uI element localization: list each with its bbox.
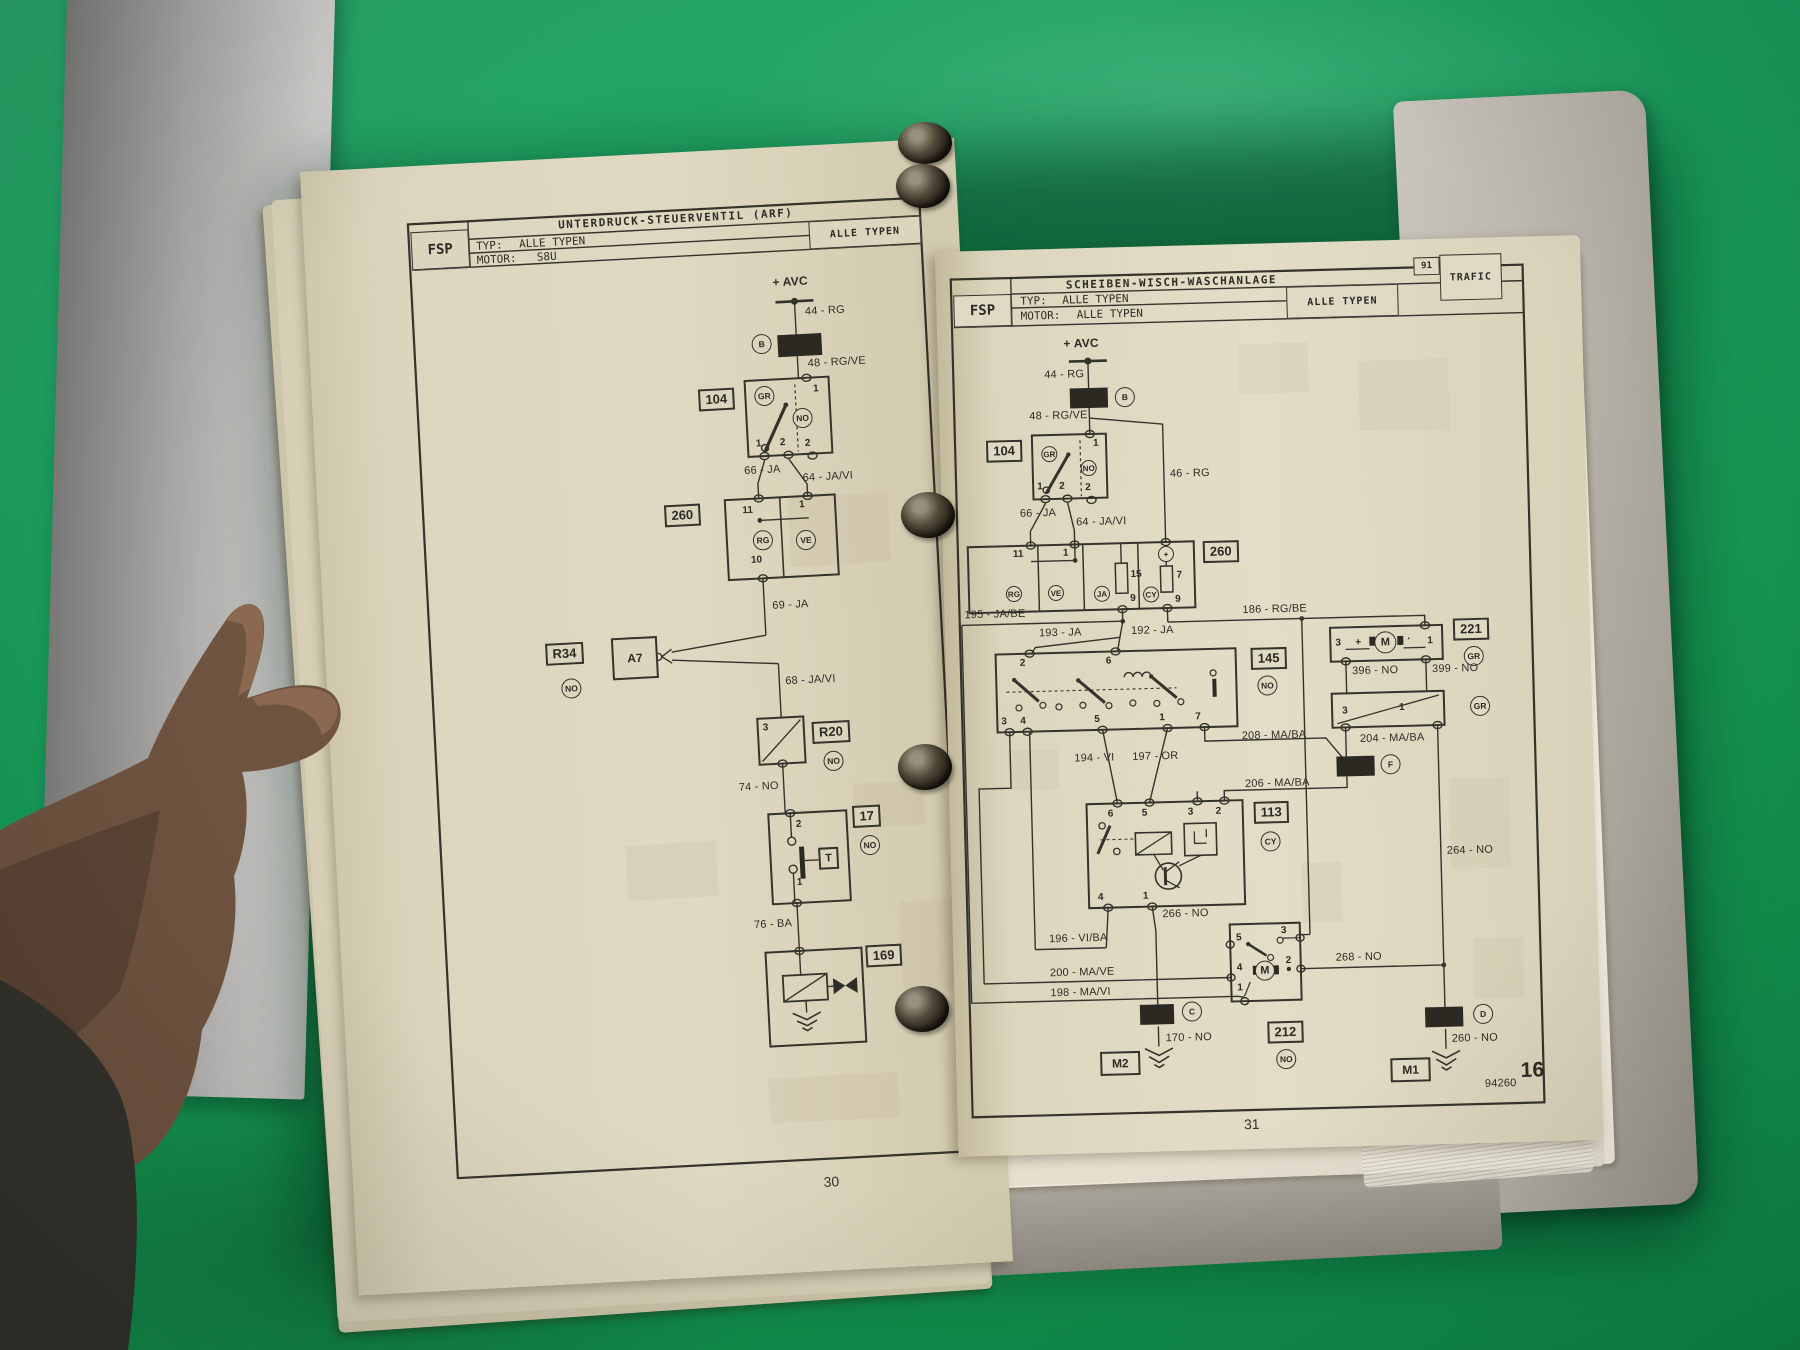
wire-label-198: 198 - MA/VI: [1050, 986, 1111, 1000]
pin-fuse7: 7: [1176, 570, 1182, 581]
typ-label: TYP:: [1020, 294, 1047, 308]
motor-label: MOTOR:: [1021, 309, 1061, 323]
pin-104-b1: 1: [1037, 481, 1043, 492]
variant-cell: ALLE TYPEN: [808, 216, 921, 250]
pin-221-1: 1: [1427, 635, 1433, 646]
ref-145: 145: [1250, 647, 1286, 670]
pin-260-11: 11: [742, 505, 753, 517]
wire-label-268: 268 - NO: [1335, 951, 1382, 964]
binder-ring-3: [901, 492, 955, 538]
ref-104: 104: [986, 440, 1022, 463]
wire-label-200: 200 - MA/VE: [1050, 966, 1115, 980]
motor-value: S8U: [536, 250, 557, 264]
pin-145-5: 5: [1094, 714, 1100, 725]
wire-label-197: 197 - OR: [1132, 750, 1179, 763]
wire-label-66: 66 - JA: [1020, 507, 1057, 520]
pin-104-b1: 1: [756, 438, 762, 449]
pin-104-b2a: 2: [780, 437, 786, 448]
pin-113-6: 6: [1108, 809, 1114, 820]
wire-label-204: 204 - MA/BA: [1360, 731, 1425, 745]
wire-label-66: 66 - JA: [744, 463, 781, 477]
pin-145-4: 4: [1020, 716, 1026, 727]
fsp-cell: FSP: [410, 229, 470, 270]
pin-260-1: 1: [799, 499, 805, 510]
binder-ring-4: [898, 744, 952, 790]
typ-value: ALLE TYPEN: [1062, 292, 1129, 307]
binder-ring-5: [895, 986, 949, 1032]
pin-145-7: 7: [1195, 711, 1201, 722]
pin-260-1: 1: [1063, 548, 1069, 559]
sheet-cell: 91: [1413, 257, 1439, 276]
box-a7: A7: [611, 636, 659, 680]
pin-fuse15: 15: [1130, 569, 1141, 580]
pin-221-minus: ·: [1407, 634, 1411, 645]
wire-label-260: 260 - NO: [1452, 1032, 1499, 1045]
hand-holding-page: [0, 570, 420, 1350]
wire-label-396: 396 - NO: [1352, 664, 1399, 677]
supply-label: + AVC: [1063, 336, 1099, 351]
typ-label: TYP:: [476, 239, 503, 253]
ref-221: 221: [1453, 618, 1489, 641]
ground-m2: M2: [1100, 1051, 1141, 1076]
ref-212: 212: [1267, 1021, 1303, 1044]
wire-label-46: 46 - RG: [1170, 467, 1210, 480]
connector-b-block: [777, 333, 822, 357]
wire-label-48: 48 - RG/VE: [1029, 409, 1088, 423]
ref-169: 169: [865, 944, 902, 968]
wire-label-76: 76 - BA: [754, 917, 793, 931]
pin-113-3: 3: [1188, 806, 1194, 817]
pin-212-5: 5: [1236, 932, 1242, 943]
connector-c-block: [1140, 1004, 1175, 1025]
wire-label-69: 69 - JA: [772, 598, 809, 612]
right-diagram-linework: [935, 235, 1603, 1157]
wire-label-208: 208 - MA/BA: [1242, 728, 1307, 742]
a7-arrowhead: [661, 649, 672, 664]
ref-260: 260: [1203, 540, 1239, 563]
pin-145-6: 6: [1106, 656, 1112, 667]
connector-b-block: [1070, 388, 1109, 409]
wire-label-194: 194 - VI: [1074, 751, 1114, 764]
wire-label-193: 193 - JA: [1039, 626, 1082, 639]
pin-fuse15-out: 9: [1130, 593, 1136, 604]
motor-label: MOTOR:: [477, 252, 517, 267]
left-page-number: 30: [823, 1173, 839, 1190]
pin-104-b2a: 2: [1059, 481, 1065, 492]
connector-ovals: [997, 421, 1449, 1010]
right-page-number: 31: [1244, 1116, 1260, 1132]
pin-17-2: 2: [796, 819, 802, 830]
wire-label-195: 195 - JA/BE: [964, 608, 1025, 622]
valve-symbol: [833, 977, 858, 994]
pin-17-1: 1: [797, 877, 803, 888]
ground-symbol: [793, 1012, 822, 1031]
pin-104-top1: 1: [1093, 438, 1099, 449]
supply-dot: [1084, 357, 1091, 364]
pin-260-10: 10: [751, 554, 763, 566]
ref-r34: R34: [545, 642, 584, 666]
pin-r20-3: 3: [762, 722, 768, 733]
wire-label-264: 264 - NO: [1447, 844, 1494, 857]
coil-symbol: [1124, 672, 1151, 677]
pin-260-11: 11: [1013, 549, 1024, 560]
wire-label-44: 44 - RG: [1044, 368, 1084, 381]
pin-221-plus: +: [1355, 637, 1361, 648]
variant-cell: ALLE TYPEN: [1286, 284, 1399, 319]
component-169: [765, 948, 866, 1047]
connector-f-block: [1336, 756, 1375, 777]
binder-ring-2: [896, 164, 950, 208]
wire-label-192: 192 - JA: [1131, 624, 1174, 637]
wire-label-399: 399 - NO: [1432, 662, 1479, 675]
ref-104: 104: [698, 388, 735, 412]
pin-212-2: 2: [1286, 955, 1292, 966]
wire-label-64: 64 - JA/VI: [1076, 515, 1127, 528]
pin-113-1: 1: [1143, 891, 1149, 902]
pin-104-b2b: 2: [805, 438, 811, 449]
supply-label: + AVC: [772, 274, 808, 290]
model-cell: TRAFIC: [1439, 253, 1502, 301]
pin-fuse7-out: 9: [1175, 594, 1181, 605]
pin-212-1: 1: [1237, 982, 1243, 993]
supply-dot: [791, 298, 798, 305]
ref-260: 260: [664, 504, 701, 528]
component-221-resistor: [1332, 691, 1445, 728]
pin-145-3: 3: [1001, 716, 1007, 727]
doc-number: 94260: [1485, 1077, 1517, 1090]
pin-221-3: 3: [1335, 638, 1341, 649]
pin-res-3: 3: [1342, 705, 1348, 716]
binder-ring-1: [898, 122, 952, 164]
wire-label-206: 206 - MA/BA: [1245, 776, 1310, 790]
pin-113-2: 2: [1216, 806, 1222, 817]
fsp-cell: FSP: [953, 294, 1012, 328]
pin-212-4: 4: [1237, 962, 1243, 973]
pin-113-4: 4: [1098, 892, 1104, 903]
page-frame: [408, 198, 969, 1178]
pin-res-1: 1: [1399, 702, 1405, 713]
pin-145-2: 2: [1020, 658, 1026, 669]
ref-113: 113: [1254, 801, 1290, 824]
connector-d-block: [1425, 1006, 1464, 1027]
pin-104-b2b: 2: [1085, 482, 1091, 493]
wire-label-196: 196 - VI/BA: [1049, 932, 1108, 946]
plate-number: 16: [1520, 1058, 1544, 1083]
wire-label-44: 44 - RG: [805, 304, 845, 318]
ref-17: 17: [852, 804, 882, 827]
wire-label-170: 170 - NO: [1166, 1031, 1213, 1044]
ground-m1: M1: [1390, 1057, 1431, 1082]
pin-113-5: 5: [1142, 808, 1148, 819]
motor-value: ALLE TYPEN: [1077, 307, 1144, 322]
wire-label-186: 186 - RG/BE: [1242, 602, 1307, 616]
pin-145-1: 1: [1159, 712, 1165, 723]
pin-212-3: 3: [1281, 925, 1287, 936]
ref-r20: R20: [811, 720, 850, 744]
photo-scene: FSP UNTERDRUCK-STEUERVENTIL (ARF) TYP: A…: [0, 0, 1800, 1350]
pin-104-top1: 1: [813, 383, 819, 394]
wire-label-74: 74 - NO: [739, 780, 779, 794]
right-page: FSP SCHEIBEN-WISCH-WASCHANLAGE TYP: ALLE…: [935, 235, 1603, 1157]
box-t: T: [818, 847, 839, 870]
wire-label-266: 266 - NO: [1162, 907, 1209, 920]
